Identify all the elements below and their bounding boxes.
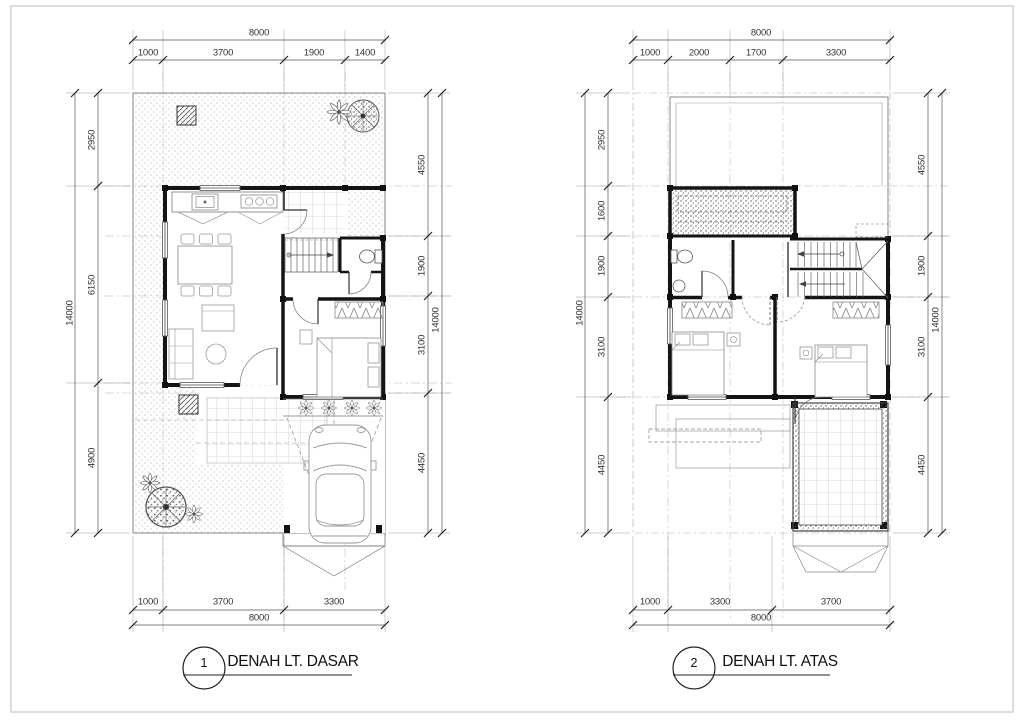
dim-left-segment: 1900 [597,256,608,276]
shrub [146,487,186,527]
plan-number: 2 [691,656,698,670]
dim-right-segment: 4450 [917,455,928,475]
upper-floor-plan [600,72,948,618]
stairs [285,238,338,272]
plan-title: DENAH LT. DASAR [227,653,358,671]
dim-right-segment: 1900 [417,256,428,276]
dim-top-segment: 3700 [213,48,233,59]
car [304,425,376,543]
wardrobe [682,302,732,318]
planter-box [177,106,196,125]
dim-bottom-segment: 1000 [138,597,158,608]
ground-floor-plan [105,72,452,618]
balcony [793,403,888,531]
dim-right-total: 14000 [431,307,442,332]
dining-set [178,234,232,296]
dim-right-segment: 3100 [417,335,428,355]
dim-bottom-segment: 3300 [324,597,344,608]
dim-left-segment: 2950 [87,130,98,150]
dim-left-segment: 6150 [87,275,98,295]
stairs [797,224,888,298]
dim-bottom-total: 8000 [751,613,771,624]
flower [327,100,351,124]
dim-left-segment: 3100 [597,337,608,357]
dim-right-segment: 4450 [417,453,428,473]
dim-bottom-segment: 3700 [821,597,841,608]
dim-right-segment: 1900 [917,256,928,276]
bedroom-furniture [672,332,867,397]
dim-top-segment: 1000 [640,48,660,59]
dim-left-segment: 1600 [597,201,608,221]
dim-right-segment: 3100 [917,337,928,357]
dim-left-segment: 2950 [597,130,608,150]
dim-bottom-segment: 1000 [640,597,660,608]
dim-right-segment: 4550 [417,155,428,175]
carport-roof [793,531,888,572]
dim-left-total: 14000 [65,300,76,325]
dim-right-segment: 4550 [917,155,928,175]
dim-left-segment: 4450 [597,455,608,475]
dim-bottom-segment: 3300 [710,597,730,608]
dim-top-total: 8000 [751,28,771,39]
dim-top-segment: 1400 [355,48,375,59]
planter-box [179,395,198,414]
roof-garden [670,188,795,236]
dim-top-segment: 2000 [689,48,709,59]
plan-title: DENAH LT. ATAS [722,653,838,671]
tree [347,100,379,132]
roof-planes [649,405,790,468]
dim-top-total: 8000 [249,28,269,39]
dim-top-segment: 1000 [138,48,158,59]
floor-plan-drawing [0,0,1024,724]
flower [140,473,160,493]
flower [185,505,203,523]
dim-top-segment: 3300 [826,48,846,59]
dim-bottom-segment: 3700 [213,597,233,608]
dim-left-segment: 4900 [87,448,98,468]
court-tiles [285,190,345,234]
bathroom-fixtures [360,250,383,263]
bathroom-fixtures [671,250,693,292]
wardrobe [833,302,879,318]
dim-top-segment: 1700 [746,48,766,59]
dim-top-segment: 1900 [304,48,324,59]
dim-right-total: 14000 [931,307,942,332]
dim-left-total: 14000 [575,300,586,325]
plan-number: 1 [201,656,208,670]
dim-bottom-total: 8000 [249,613,269,624]
drawing-sheet: 8000 1000 3700 1900 1400 14000 2950 6150… [0,0,1024,724]
